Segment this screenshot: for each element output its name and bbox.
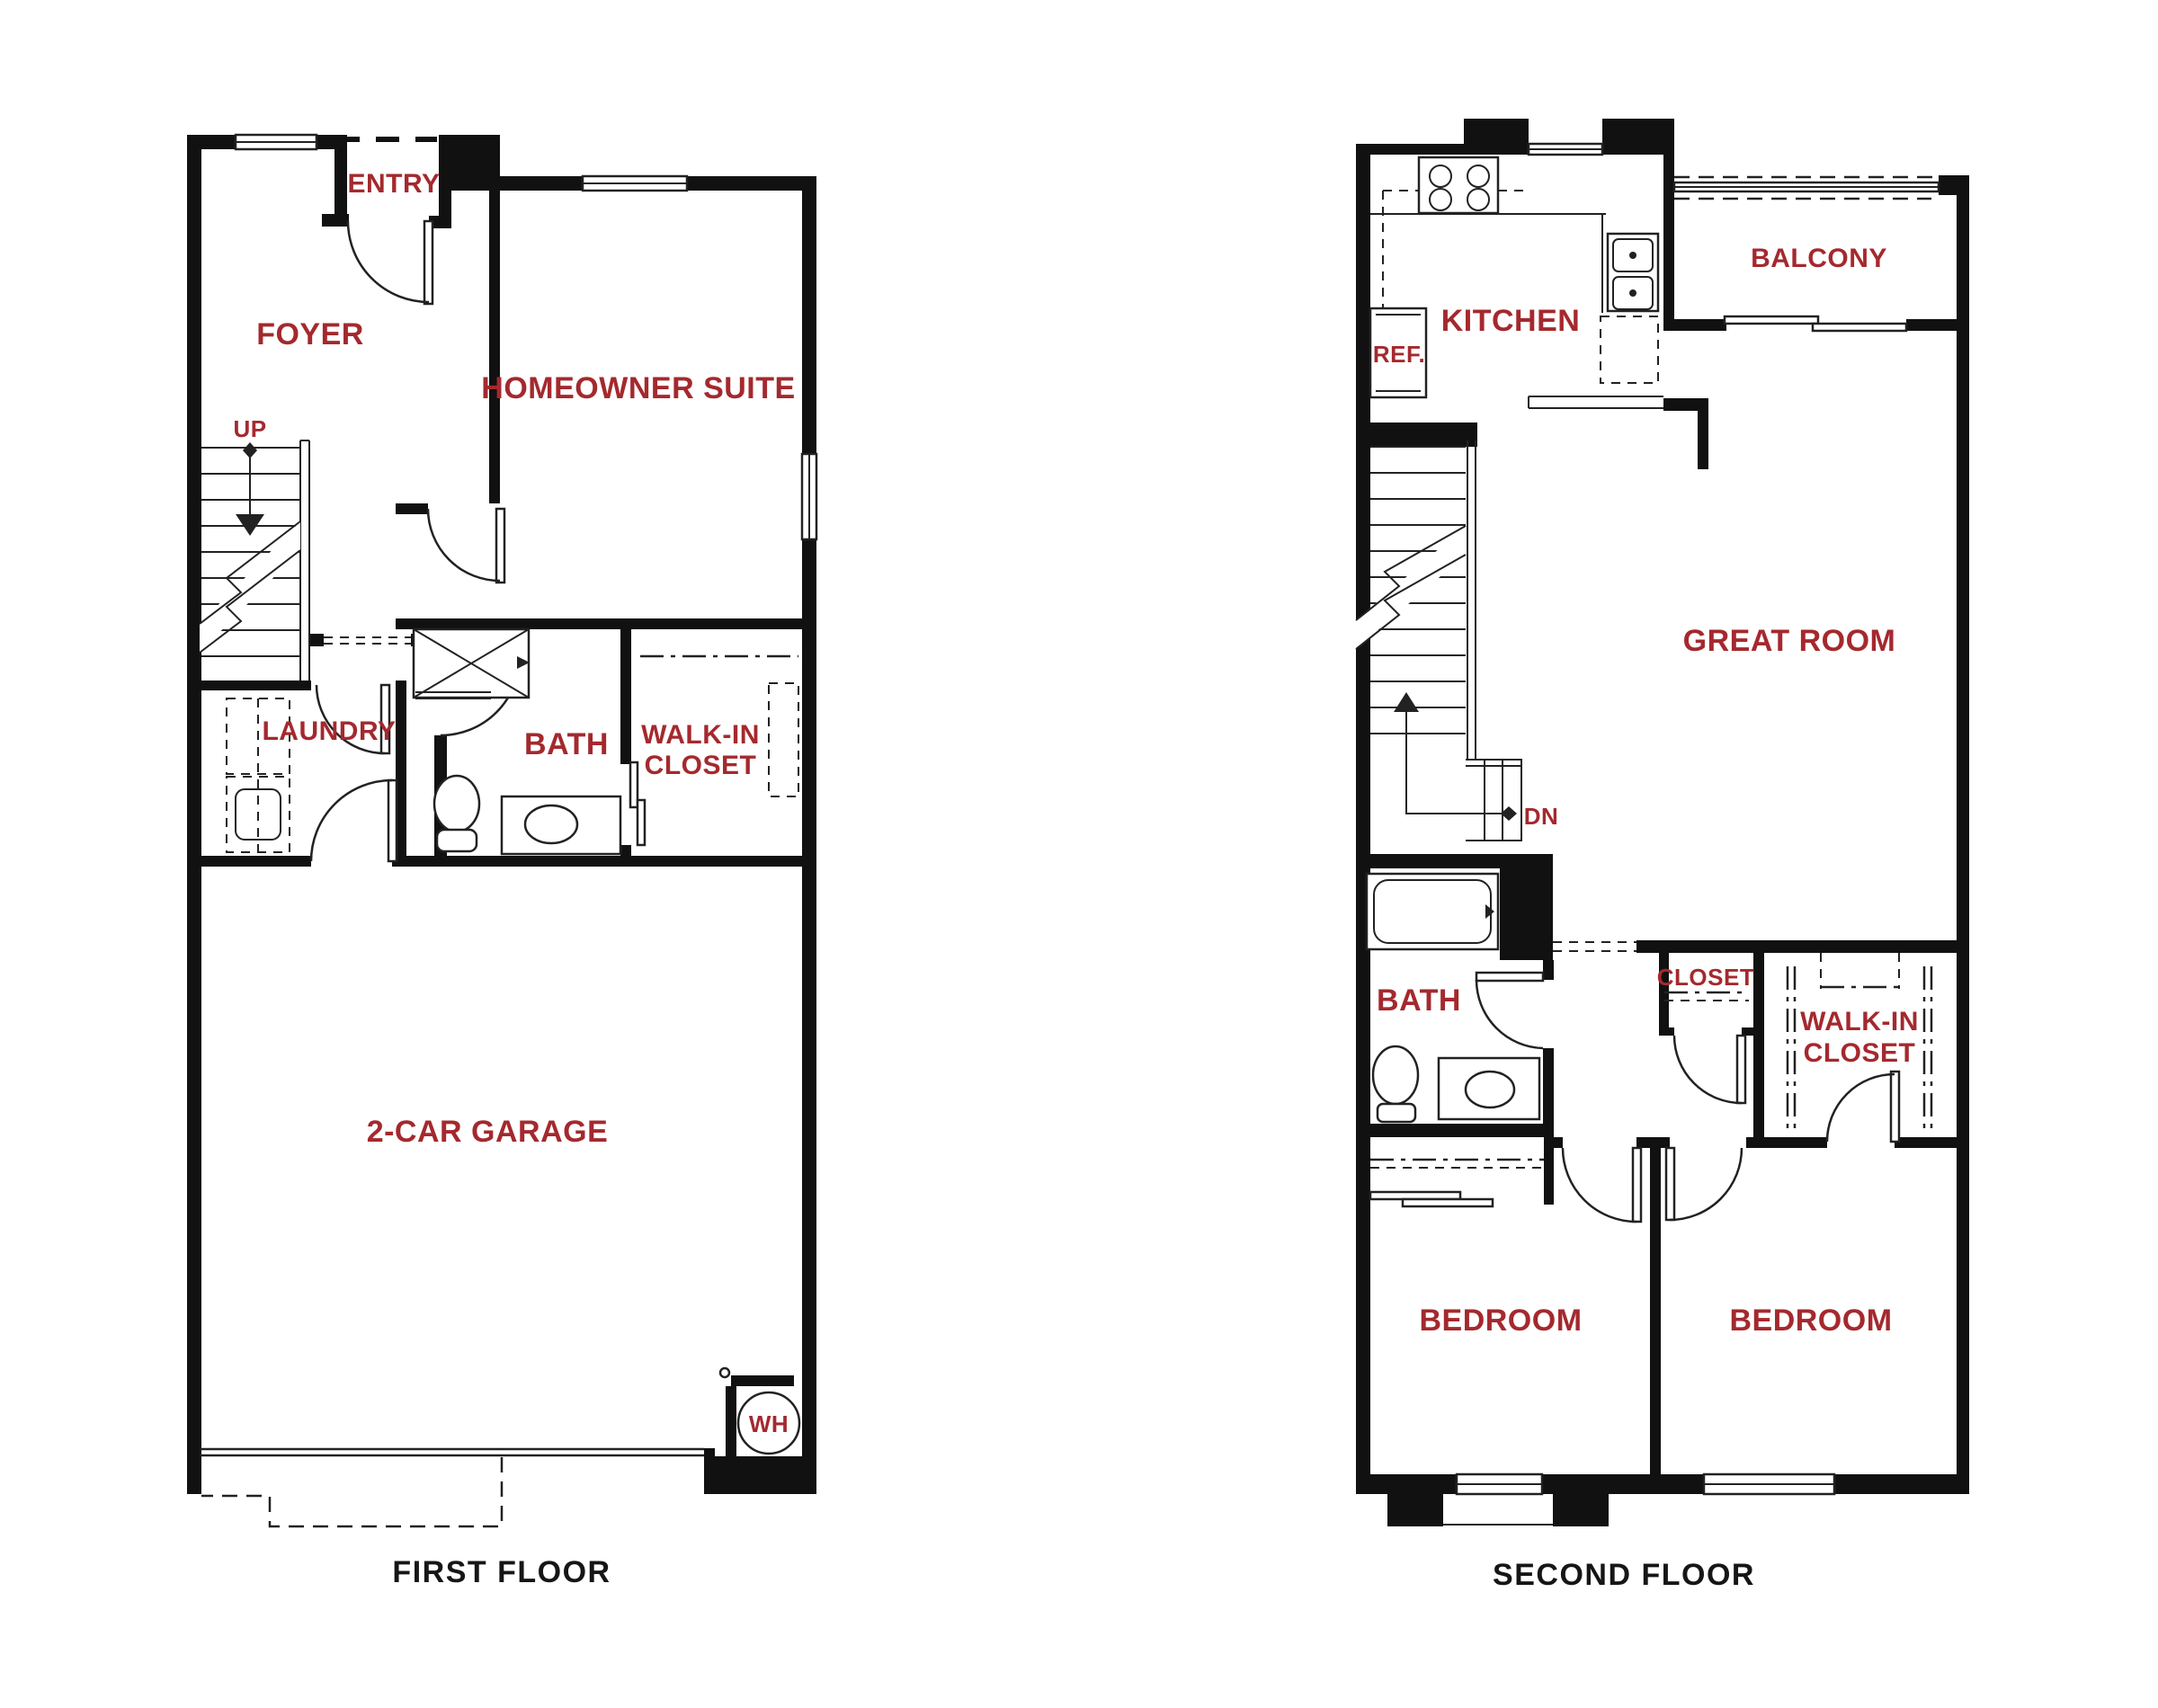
tub (1367, 874, 1498, 949)
label-walk-in-first-line1: WALK-IN (641, 720, 760, 750)
window-kitchen (1529, 144, 1602, 155)
first-floor-plan: WH ENTRY FOYER HOMEOWNER SUITE UP LAUNDR… (187, 135, 816, 1589)
second-floor-stairs (1356, 440, 1521, 841)
homeowner-suite-door (428, 509, 504, 583)
label-balcony: BALCONY (1751, 244, 1887, 273)
window-foyer (236, 135, 317, 149)
sink-second-floor (1439, 1058, 1539, 1119)
floor-plan-canvas: WH ENTRY FOYER HOMEOWNER SUITE UP LAUNDR… (0, 0, 2158, 1708)
label-kitchen: KITCHEN (1441, 304, 1581, 338)
window-bedroom-left (1457, 1474, 1542, 1494)
soffit-dashes (324, 637, 411, 644)
label-bedroom-left: BEDROOM (1419, 1303, 1582, 1338)
refrigerator: REF. (1370, 308, 1426, 397)
sink-first-floor (502, 796, 620, 854)
bath-door-second (1476, 973, 1543, 1048)
stair-up-arrow (236, 442, 264, 536)
walk-in-closet-door-second (1827, 1072, 1899, 1142)
garage-door (200, 1449, 704, 1526)
label-wh: WH (749, 1410, 789, 1437)
label-great-room: GREAT ROOM (1683, 624, 1896, 658)
kitchen-sink (1608, 234, 1658, 311)
label-laundry: LAUNDRY (262, 716, 396, 746)
label-walk-in-second-line2: CLOSET (1804, 1038, 1916, 1068)
balcony-railing (1674, 177, 1939, 199)
label-dn: DN (1524, 803, 1559, 830)
driveway-apron-dashes (201, 1457, 502, 1526)
shower (414, 629, 530, 698)
walk-in-closet-slider (630, 762, 645, 845)
label-bath-second: BATH (1377, 983, 1461, 1018)
closet-shelves (1664, 992, 1749, 1001)
toilet-second-floor (1373, 1046, 1418, 1122)
second-floor-title: SECOND FLOOR (1493, 1558, 1755, 1592)
stair-down-arrow (1394, 692, 1517, 821)
bedroom-left-door (1563, 1148, 1641, 1222)
floor-plan-drawing: WH ENTRY FOYER HOMEOWNER SUITE UP LAUNDR… (0, 0, 2158, 1708)
balcony-sliding-door (1725, 316, 1906, 331)
label-up: UP (233, 415, 266, 442)
window-homeowner-suite-top (583, 176, 687, 191)
second-floor-plan: REF. KITCH (1356, 119, 1969, 1592)
entry-door (348, 221, 432, 304)
closet-door (1674, 1036, 1745, 1103)
window-bedroom-right (1704, 1474, 1834, 1494)
garage-door-interior (311, 780, 397, 861)
label-walk-in-first-line2: CLOSET (645, 751, 757, 780)
label-closet: CLOSET (1657, 964, 1754, 991)
label-bedroom-right: BEDROOM (1729, 1303, 1892, 1338)
bedroom-left-closet-slider (1370, 1192, 1493, 1206)
label-walk-in-second-line1: WALK-IN (1800, 1007, 1919, 1036)
stove (1419, 157, 1498, 213)
label-homeowner-suite: HOMEOWNER SUITE (481, 371, 795, 405)
label-ref: REF. (1373, 341, 1425, 368)
label-foyer: FOYER (256, 317, 364, 351)
bedroom-left-closet-shelf (1370, 1160, 1544, 1168)
label-garage: 2-CAR GARAGE (367, 1115, 609, 1149)
label-entry: ENTRY (347, 169, 440, 199)
first-floor-title: FIRST FLOOR (392, 1555, 611, 1589)
window-homeowner-suite-right (802, 454, 816, 539)
label-bath-first: BATH (524, 727, 609, 761)
first-floor-stairs (200, 440, 309, 681)
hall-opening-dashes (1553, 942, 1636, 951)
toilet-first-floor (434, 776, 479, 851)
bedroom-right-door (1666, 1148, 1742, 1220)
